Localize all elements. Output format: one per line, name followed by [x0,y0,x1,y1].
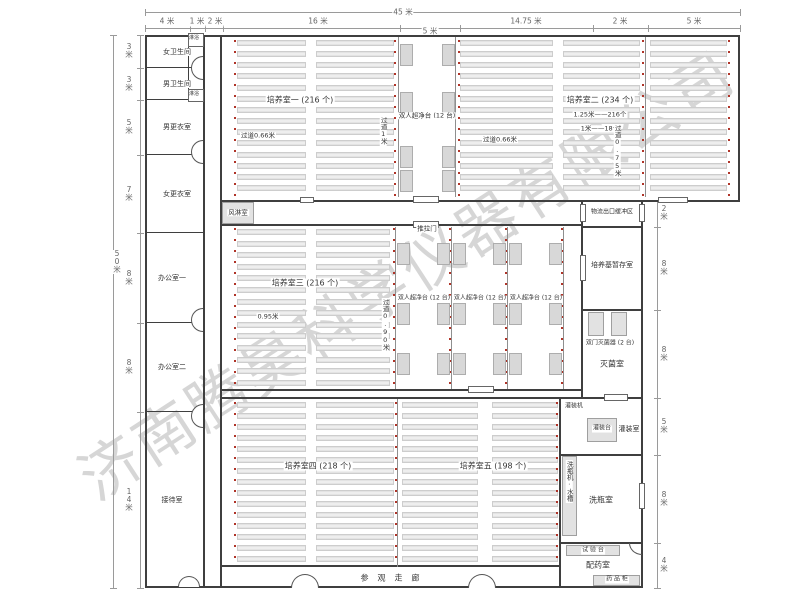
room-label-left-3: 女更衣室 [162,190,192,198]
shelf-row [563,163,640,169]
shelf-row [237,252,306,258]
shelf-row [316,333,390,339]
shelf-row [237,174,306,180]
shelf-row [316,322,390,328]
room-label-left-6: 接待室 [161,496,184,504]
dim-left-total-tick [110,35,117,36]
shelf-row [492,501,558,507]
shelf-row [563,51,640,57]
wall [641,200,643,588]
shelf-row [650,73,727,79]
filling-machine-label: 灌装机 [564,404,584,411]
rail [397,399,398,567]
shelf-row [237,140,306,146]
shelf-row [402,446,478,452]
shelf-row [237,501,306,507]
dim-top-tick [400,25,401,32]
shelf-row [460,51,553,57]
bench-block [549,243,562,265]
room-label-washing: 洗瓶室 [588,495,614,504]
door-arc [468,574,496,588]
bench-block [442,146,455,168]
bench-block [400,146,413,168]
shelf-row [237,446,306,452]
shelf-row [316,152,394,158]
shelf-row [460,163,553,169]
bench-block [453,353,466,375]
shelf-row [650,85,727,91]
bench-block [453,243,466,265]
shelf-row [316,380,390,386]
wall [222,389,583,391]
shelf-row [237,51,306,57]
dim-right-line [657,200,658,588]
dim-right-tick [654,310,661,311]
shelf-row [316,357,390,363]
door-arc [191,56,203,80]
shelf-row [316,174,394,180]
wall [559,397,561,588]
sterilizer-label: 双门灭菌器 (2 台) [585,341,635,348]
room-label-left-4: 办公室一 [157,274,187,282]
bench-block [493,303,506,325]
shelf-row [402,545,478,551]
dim-left-tick [137,588,144,589]
shelf-row [237,229,306,235]
dim-right-label: 8米 [660,491,669,507]
dim-top-label: 5 米 [686,16,703,27]
shelf-row [237,545,306,551]
shelf-row [402,479,478,485]
shelf-row [316,424,394,430]
red-dot-strip [642,40,644,196]
door-rect [580,204,586,222]
rail [395,227,396,389]
shelf-row [460,73,553,79]
shelf-row [492,402,558,408]
medicine-cabinet-label: 药 品 柜 [605,577,629,584]
shelf-row [316,402,394,408]
dim-left-tick [137,233,144,234]
shelf-row [316,299,390,305]
bench-block [437,303,450,325]
wall [145,35,740,37]
red-dot-strip [234,228,236,386]
shelf-row [402,413,478,419]
shelf-row [237,368,306,374]
dim-top-tick [145,25,146,32]
shelf-row [460,118,553,124]
room-label-dispensing: 配药室 [585,560,611,569]
shelf-row [563,152,640,158]
shelf-row [492,534,558,540]
shelf-row [402,512,478,518]
room-label-culture-4: 培养室四 (218 个) [284,461,353,470]
test-bench-label: 试 验 台 [581,548,605,555]
shelf-row [237,435,306,441]
shelf-row [316,556,394,562]
shelf-row [563,85,640,91]
wall [145,35,147,588]
dim-top-label: 16 米 [307,16,328,27]
dim-left-label: 8米 [125,359,134,375]
washer-sink-label: 洗瓶机·水槽 [566,460,573,503]
red-dot-strip [395,402,397,562]
shelf-row [316,51,394,57]
shelf-row [650,40,727,46]
dim-right-label: 5米 [660,418,669,434]
wall [738,35,740,202]
rail [645,37,646,197]
rail [507,227,508,389]
dim-top-tick [740,25,741,32]
dim-top-line [145,28,740,29]
sliding-door-label: 推拉门 [416,225,438,232]
shelf-row [650,118,727,124]
room-label-left-5: 办公室二 [157,363,187,371]
room-label-culture-1: 培养室一 (216 个) [266,95,335,104]
door-rect [580,255,586,281]
dim-left-tick [137,412,144,413]
door-arc [291,574,319,588]
door-arc [191,404,203,428]
dim-top-label: 2 米 [612,16,629,27]
shelf-row [402,556,478,562]
shelf-row [460,185,553,191]
shelf-row [492,523,558,529]
dim-right-tick [654,227,661,228]
bench-block [453,303,466,325]
shower-stall-box: 淋浴 [188,89,204,102]
shelf-row [563,140,640,146]
shelf-row [316,185,394,191]
sterilizer-box [588,312,604,336]
shelf-row [237,333,306,339]
dim-top-total-tick [145,9,146,16]
dim-right-label: 8米 [660,260,669,276]
bench-block [400,44,413,66]
shelf-row [237,402,306,408]
shelf-row [237,152,306,158]
shelf-row [402,490,478,496]
shelf-row [650,62,727,68]
door-rect [639,204,645,222]
shelf-row [650,152,727,158]
shelf-row [460,107,553,113]
wall [222,397,641,399]
bench-block [397,353,410,375]
dim-top-label: 4 米 [159,16,176,27]
shelf-row [316,287,390,293]
wall [220,35,222,588]
dim-top-tick [460,25,461,32]
dim-top-total-label: 45 米 [392,7,413,18]
shelf-row [237,523,306,529]
floor-plan-canvas: 济南腾昊科学仪器有限公司 45 米4 米1 米2 米16 米5 米14.75 米… [0,0,800,600]
shelf-row [492,446,558,452]
shelf-row [402,424,478,430]
wall [583,226,641,228]
dim-left-total-line [113,35,114,588]
shelf-row [316,85,394,91]
shelf-row [237,185,306,191]
shelf-row [402,402,478,408]
room-label-filling: 灌装室 [618,425,641,433]
dim-top-tick [593,25,594,32]
shelf-row [650,163,727,169]
dim-right-tick [654,543,661,544]
dim-top-total-line [145,12,740,13]
door-rect [468,386,494,393]
shelf-row [563,40,640,46]
dim-top-label: 2 米 [207,16,224,27]
bench-block [442,44,455,66]
dim-top-tick [648,25,649,32]
plan-layer: 45 米4 米1 米2 米16 米5 米14.75 米2 米5 米50米3米3米… [0,0,800,600]
door-arc [191,140,203,164]
dim-left-label: 14米 [125,488,134,512]
dim-left-total-label: 50米 [113,250,122,274]
dim-left-label: 3米 [125,76,134,92]
shelf-row [492,490,558,496]
room-label-culture-3: 培养室三 (216 个) [271,278,340,287]
shelf-row [316,310,390,316]
shelf-row [316,62,394,68]
door-rect [604,394,628,401]
shelf-row [237,534,306,540]
shelf-row [402,523,478,529]
shelf-row [316,368,390,374]
room-label-medium-storage: 培养基暂存室 [590,261,634,269]
shelf-row [237,241,306,247]
shelf-row [563,62,640,68]
bench-block [400,170,413,192]
shelf-row [316,534,394,540]
shelf-row [563,174,640,180]
aisle-label: 过道0.66米 [240,132,276,139]
dim-right-tick [654,588,661,589]
shelf-row [237,73,306,79]
dim-left-tick [137,323,144,324]
shelf-row [650,129,727,135]
note-label: 0.95米 [257,313,280,320]
shelf-row [460,174,553,180]
corridor-label: 参观走廊 [351,573,430,582]
dim-left-total-tick [110,588,117,589]
room-label-culture-2: 培养室二 (234 个) [566,95,635,104]
door-rect [639,483,645,509]
shelf-row [650,107,727,113]
shelf-row [237,413,306,419]
dim-left-line [140,35,141,588]
red-dot-strip [458,40,460,196]
red-dot-strip [234,402,236,562]
shelf-row [237,479,306,485]
dim-top-label: 14.75 米 [509,16,542,27]
bench-block [509,353,522,375]
red-dot-strip [234,40,236,196]
shelf-row [650,140,727,146]
red-dot-strip [556,402,558,562]
shelf-row [237,357,306,363]
shelf-row [316,435,394,441]
shelf-row [316,446,394,452]
shelf-row [237,62,306,68]
door-rect [413,196,439,203]
wall [203,35,205,588]
room-label-buffer: 物流出口缓冲区 [590,210,634,217]
shelf-row [650,96,727,102]
shelf-row [237,107,306,113]
door-rect [300,197,314,203]
aisle-label-v: 过道1米 [380,116,387,146]
shelf-row [460,152,553,158]
door-arc [178,576,200,587]
shelf-row [563,118,640,124]
bench-block [437,243,450,265]
bench-block [549,353,562,375]
shelf-row [316,40,394,46]
door-rect [658,197,688,203]
shelf-row [237,287,306,293]
shelf-row [316,73,394,79]
shelf-row [316,501,394,507]
bench-block [437,353,450,375]
dim-right-label: 4米 [660,557,669,573]
shelf-row [460,62,553,68]
bench-block [493,243,506,265]
shelf-row [237,40,306,46]
shelf-row [316,413,394,419]
red-dot-strip [393,228,395,386]
rail [563,227,564,389]
bench-block [493,353,506,375]
clean-bench-label: 双人超净台 (12 台) [509,296,563,303]
air-shower-label: 风淋室 [227,209,249,216]
shelf-row [237,424,306,430]
dim-top-label: 1 米 [189,16,206,27]
shelf-row [316,512,394,518]
clean-bench-label: 双人超净台 (12 台) [453,296,507,303]
spec-label: 1.25米——216个 [573,111,628,118]
shelf-row [460,40,553,46]
shelf-row [402,534,478,540]
room-label-culture-5: 培养室五 (198 个) [459,461,528,470]
dim-left-tick [137,35,144,36]
shelf-row [316,479,394,485]
shelf-row [316,163,394,169]
shelf-row [316,490,394,496]
dim-left-tick [137,68,144,69]
red-dot-strip [394,40,396,196]
shelf-row [237,345,306,351]
dim-right-tick [654,455,661,456]
bench-block [549,303,562,325]
dim-left-label: 3米 [125,43,134,59]
shelf-row [402,435,478,441]
clean-bench-label: 双人超净台 (12 台) [398,112,456,119]
shelf-row [316,523,394,529]
dim-left-label: 5米 [125,119,134,135]
shelf-row [237,264,306,270]
rail [451,227,452,389]
bench-block [509,303,522,325]
shelf-row [492,545,558,551]
red-dot-strip [728,40,730,196]
dim-left-tick [137,155,144,156]
dim-left-tick [137,100,144,101]
aisle-label: 过道0.66米 [482,136,518,143]
shelf-row [650,174,727,180]
bench-block [442,170,455,192]
aisle-label-v: 过道0.75米 [614,124,621,178]
shelf-row [237,163,306,169]
filling-table-label: 灌装台 [592,426,612,433]
shelf-row [563,185,640,191]
door-arc [629,543,642,555]
shelf-row [237,299,306,305]
shower-stall-box: 淋浴 [188,33,204,47]
shelf-row [563,73,640,79]
shelf-row [460,96,553,102]
room-label-left-1: 男卫生间 [162,80,192,88]
shelf-row [237,118,306,124]
shelf-row [492,424,558,430]
clean-bench-label: 双人超净台 (12 台) [397,296,451,303]
wall [222,224,583,226]
dim-right-label: 2米 [660,205,669,221]
shelf-row [316,107,394,113]
shelf-row [316,545,394,551]
shelf-row [402,501,478,507]
dim-left-label: 8米 [125,270,134,286]
dim-right-tick [654,398,661,399]
shelf-row [460,85,553,91]
wall [583,309,641,311]
dim-left-label: 7米 [125,186,134,202]
room-label-left-2: 男更衣室 [162,123,192,131]
dim-right-label: 8米 [660,346,669,362]
shelf-row [492,556,558,562]
dim-top-total-tick [740,9,741,16]
shelf-row [650,185,727,191]
shelf-row [237,85,306,91]
shelf-row [316,264,390,270]
shelf-row [237,556,306,562]
wall [145,232,205,233]
shelf-row [237,490,306,496]
wall [222,565,561,567]
shelf-row [316,252,390,258]
shelf-row [316,241,390,247]
shelf-row [492,479,558,485]
sterilizer-box [611,312,627,336]
shelf-row [492,512,558,518]
wall [581,200,583,398]
aisle-label-v: 过道0.90米 [382,298,389,352]
room-label-sterilization: 灭菌室 [599,359,625,368]
shelf-row [492,413,558,419]
room-label-left-0: 女卫生间 [162,48,192,56]
shelf-row [237,512,306,518]
shelf-row [237,380,306,386]
shelf-row [492,435,558,441]
shelf-row [237,322,306,328]
bench-block [397,303,410,325]
bench-block [509,243,522,265]
shelf-row [316,345,390,351]
shelf-row [316,229,390,235]
